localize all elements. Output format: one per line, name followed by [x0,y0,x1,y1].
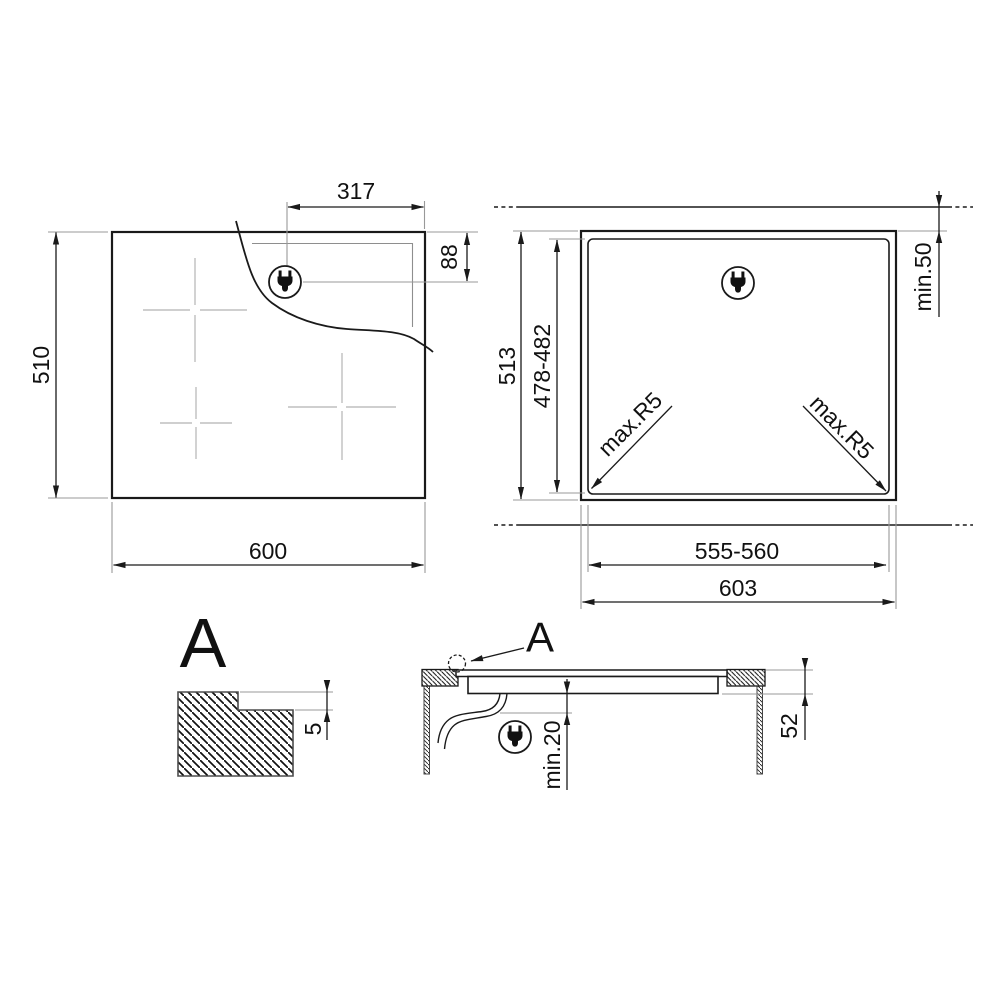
power-plug-icon [269,266,301,298]
extension-lines [240,692,333,710]
cabinet-side-wall-left [424,686,430,774]
dim-label-plug-x: 317 [337,178,375,204]
dim-label-rebate-depth: 5 [300,723,326,736]
detail-a-figure: A 5 [178,604,333,776]
dim-label-plug-y: 88 [436,244,462,270]
dim-label-rear-clearance: min.50 [910,242,936,311]
installation-diagram-page: 510 600 317 88 513 478-482 min.50 max.R5… [0,0,1000,1000]
dim-label-width: 600 [249,538,287,564]
cabinet-side-wall-right [757,686,763,774]
detail-callout-letter: A [526,614,554,661]
worktop-section-right [727,670,765,687]
detail-callout-leader [471,648,524,661]
power-plug-icon [722,267,754,299]
arrowhead-up [324,710,330,722]
arrowhead-down [324,680,330,692]
arrowhead-up [802,694,808,706]
dim-label-cutout-depth: 478-482 [529,324,555,408]
arrowhead-down [936,195,942,207]
hob-outline [112,232,425,498]
arrowhead-down [802,658,808,670]
arrowhead-up [936,231,942,243]
dim-label-depth: 510 [28,346,54,384]
hob-top-view-figure: 510 600 317 88 [28,178,478,573]
glass-top-section [456,670,727,677]
dim-label-cutout-width: 555-560 [695,538,779,564]
worktop-rebate-section [178,692,293,776]
side-section-figure: A min.20 52 [422,614,813,791]
detail-title-letter: A [180,604,227,682]
dim-label-underside-clearance: min.20 [539,720,565,789]
worktop-cutout-figure: 513 478-482 min.50 max.R5 max.R5 555-560… [494,191,973,609]
worktop-section-left [422,670,458,687]
power-plug-icon [499,721,531,753]
dim-label-worktop-depth: 513 [494,347,520,385]
hob-body-section [468,677,718,694]
dim-label-worktop-width: 603 [719,575,757,601]
dim-label-installed-height: 52 [776,713,802,739]
diagram-canvas: 510 600 317 88 513 478-482 min.50 max.R5… [0,0,1000,1000]
